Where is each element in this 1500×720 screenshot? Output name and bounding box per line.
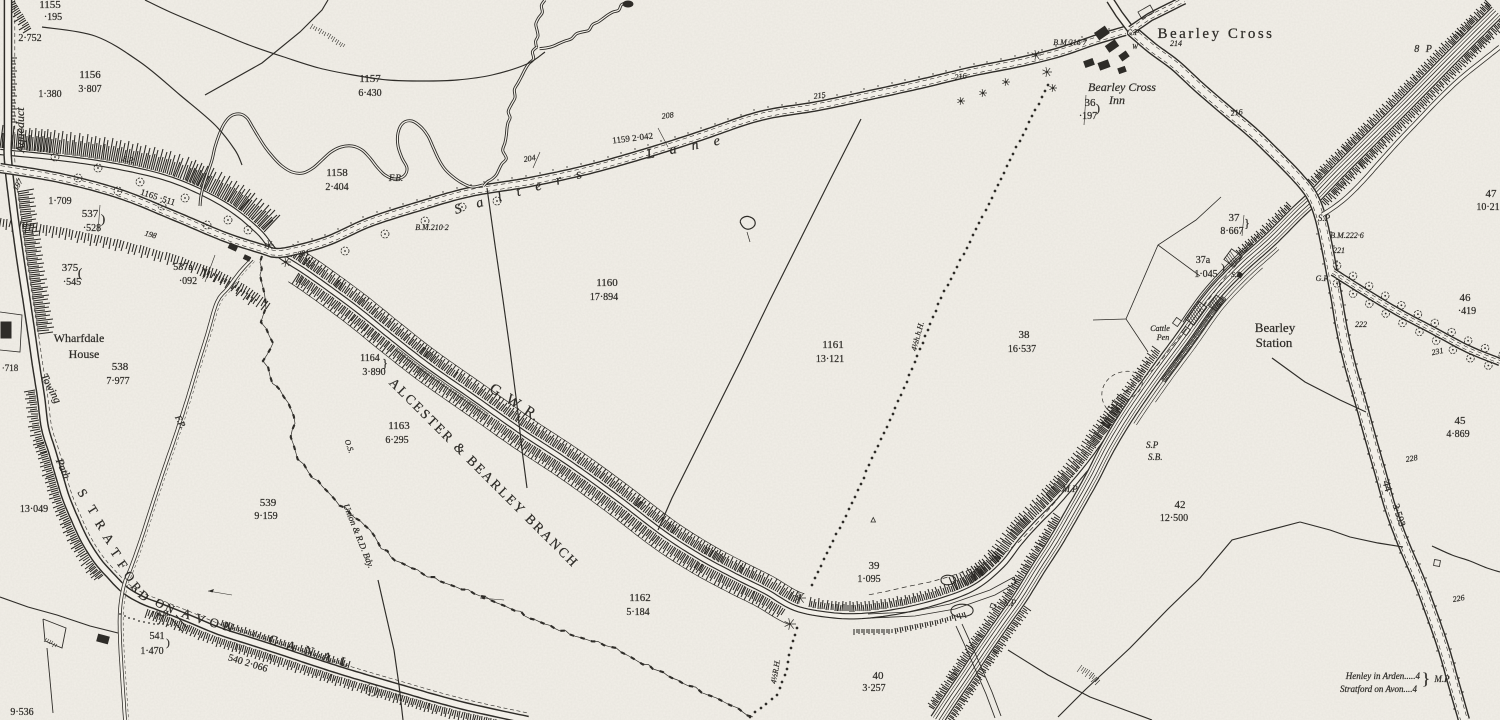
svg-text:S.P: S.P (1231, 271, 1241, 279)
svg-text:222: 222 (1355, 320, 1367, 329)
svg-text:214: 214 (1170, 39, 1182, 48)
svg-text:1·380: 1·380 (38, 89, 61, 100)
svg-text:Inn: Inn (1108, 93, 1125, 107)
svg-text:W.M.: W.M. (156, 610, 171, 618)
svg-text:4·869: 4·869 (1446, 429, 1469, 440)
svg-text:6·430: 6·430 (358, 88, 381, 99)
svg-text:): ) (202, 264, 206, 279)
svg-text:1162: 1162 (629, 592, 651, 604)
svg-text:Cattle: Cattle (1150, 324, 1170, 333)
svg-text:1161: 1161 (822, 339, 844, 351)
svg-text:G.P: G.P (1127, 28, 1140, 37)
svg-text:208: 208 (661, 110, 674, 121)
svg-text:215: 215 (813, 90, 826, 101)
svg-text:42: 42 (1175, 499, 1186, 511)
svg-text:S.P: S.P (1146, 440, 1159, 450)
svg-text:): ) (1096, 101, 1100, 115)
svg-text:47: 47 (1486, 188, 1498, 200)
svg-text:1·095: 1·095 (857, 574, 880, 585)
svg-text:1163: 1163 (388, 420, 410, 432)
svg-text:Henley in Arden.....4: Henley in Arden.....4 (1345, 671, 1421, 681)
svg-text:46: 46 (1460, 292, 1472, 304)
svg-text:2·404: 2·404 (325, 182, 348, 193)
svg-text:1160: 1160 (596, 277, 618, 289)
svg-text:Bearley Cross: Bearley Cross (1088, 80, 1156, 94)
svg-text:40: 40 (873, 670, 885, 682)
svg-text:216: 216 (1230, 107, 1243, 118)
svg-text:1·709: 1·709 (48, 196, 71, 207)
svg-text:Pen: Pen (1156, 333, 1169, 342)
svg-text:}: } (382, 356, 388, 370)
svg-text:): ) (1221, 262, 1225, 274)
svg-text:House: House (69, 347, 100, 361)
svg-text:16·537: 16·537 (1008, 344, 1036, 355)
svg-text:45: 45 (1455, 415, 1467, 427)
svg-text:216: 216 (954, 71, 967, 82)
svg-text:Station: Station (1256, 335, 1293, 350)
svg-text:9·536: 9·536 (10, 707, 33, 718)
svg-text:13·121: 13·121 (816, 354, 844, 365)
svg-text:G.P: G.P (1316, 274, 1329, 283)
svg-text:·195: ·195 (44, 12, 62, 23)
svg-text:12·500: 12·500 (1160, 513, 1188, 524)
svg-text:·197: ·197 (1079, 111, 1097, 122)
svg-text:}: } (1422, 669, 1430, 688)
svg-text:Bearley: Bearley (1255, 320, 1296, 335)
svg-text:Aqueduct: Aqueduct (13, 107, 27, 154)
svg-text:1·045: 1·045 (1194, 269, 1217, 280)
svg-text:39: 39 (869, 560, 881, 572)
svg-text:1157: 1157 (359, 73, 381, 85)
svg-text:1164: 1164 (360, 353, 380, 364)
svg-text:537: 537 (82, 208, 99, 220)
svg-text:): ) (101, 211, 105, 226)
svg-text:5·184: 5·184 (626, 607, 649, 618)
svg-text:9·159: 9·159 (254, 511, 277, 522)
svg-text:3·257: 3·257 (862, 683, 885, 694)
svg-text:221: 221 (1333, 246, 1345, 255)
svg-text:8·667: 8·667 (1220, 226, 1243, 237)
svg-text:1155: 1155 (39, 0, 61, 11)
svg-text:1156: 1156 (79, 69, 101, 81)
svg-text:1158: 1158 (326, 167, 348, 179)
svg-text:538: 538 (112, 361, 129, 373)
svg-text:375: 375 (62, 262, 79, 274)
svg-text:38: 38 (1019, 329, 1031, 341)
svg-text:37a: 37a (1196, 255, 1211, 266)
svg-text:B.M.222·6: B.M.222·6 (1330, 231, 1364, 240)
svg-text:S.P: S.P (1318, 213, 1331, 223)
svg-text:17·894: 17·894 (590, 292, 618, 303)
svg-text:537a: 537a (173, 262, 193, 273)
svg-text:S.P: S.P (1004, 598, 1017, 608)
svg-text:37: 37 (1229, 212, 1241, 224)
svg-text:F.B.: F.B. (388, 173, 403, 183)
svg-text:B.M.216·7: B.M.216·7 (1053, 38, 1088, 47)
svg-text:·092: ·092 (179, 276, 197, 287)
svg-text:2·752: 2·752 (18, 33, 41, 44)
svg-text:): ) (166, 637, 170, 649)
svg-text:539: 539 (260, 497, 277, 509)
svg-text:B.M.210·2: B.M.210·2 (415, 223, 449, 232)
svg-text:}: } (1244, 216, 1250, 230)
svg-text:Wharfdale: Wharfdale (54, 331, 105, 345)
svg-text:·419: ·419 (1458, 306, 1476, 317)
svg-text:7·977: 7·977 (106, 376, 129, 387)
svg-text:8 P: 8 P (1414, 44, 1434, 55)
svg-text:541: 541 (150, 631, 165, 642)
svg-text:·528: ·528 (83, 223, 101, 234)
svg-text:36: 36 (1085, 97, 1097, 109)
svg-text:13·049: 13·049 (20, 504, 48, 515)
svg-text:Stratford on Avon....4: Stratford on Avon....4 (1340, 684, 1418, 694)
svg-text:M.P: M.P (1433, 674, 1450, 684)
svg-text:(: ( (78, 265, 82, 280)
svg-text:3·807: 3·807 (78, 84, 101, 95)
svg-text:6·295: 6·295 (385, 435, 408, 446)
svg-text:1·470: 1·470 (140, 646, 163, 657)
svg-text:M.P: M.P (1061, 484, 1078, 494)
svg-text:·718: ·718 (2, 363, 19, 373)
svg-text:S.B.: S.B. (1148, 452, 1163, 462)
svg-text:10·21: 10·21 (1476, 202, 1499, 213)
